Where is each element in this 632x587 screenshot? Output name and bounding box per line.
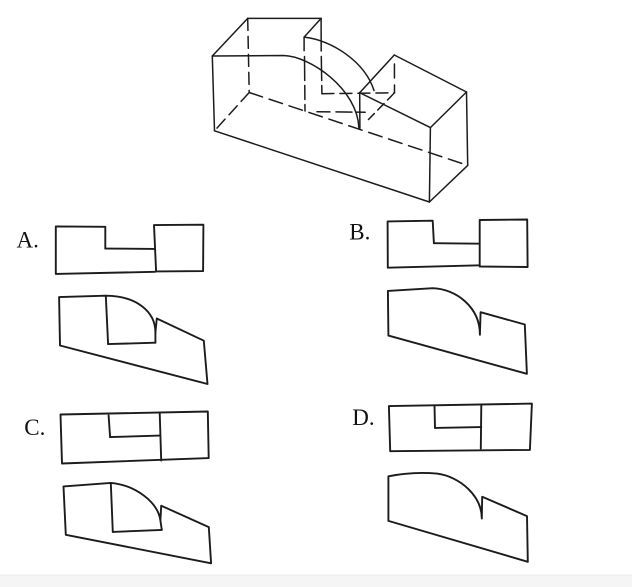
svg-text:A.: A. <box>17 227 39 252</box>
svg-text:C.: C. <box>24 415 45 440</box>
svg-text:B.: B. <box>349 220 370 245</box>
svg-text:D.: D. <box>352 405 374 430</box>
